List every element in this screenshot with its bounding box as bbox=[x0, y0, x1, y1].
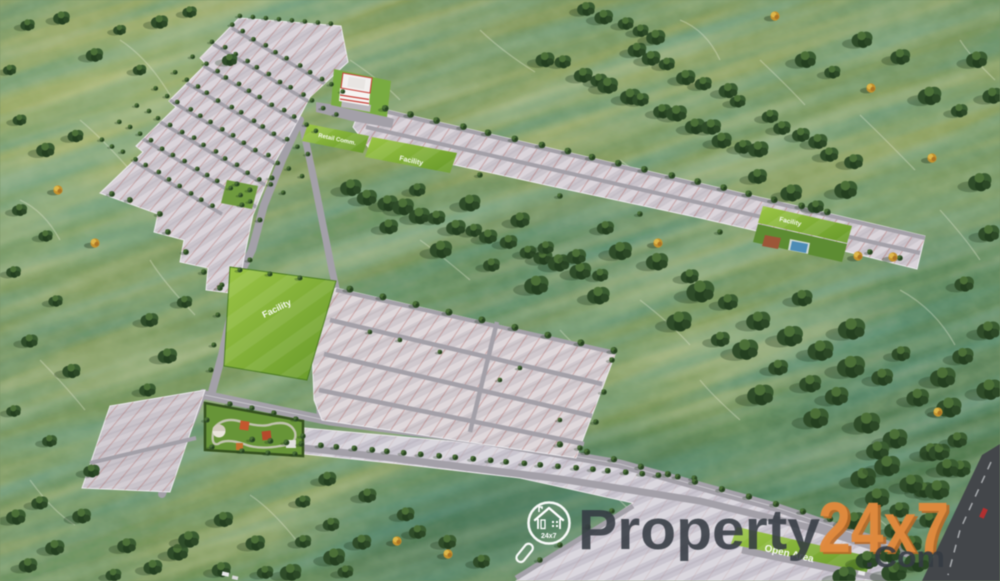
svg-text:Property: Property bbox=[578, 498, 820, 562]
svg-text:24x7: 24x7 bbox=[541, 533, 557, 540]
svg-text:.Com: .Com bbox=[865, 541, 945, 574]
